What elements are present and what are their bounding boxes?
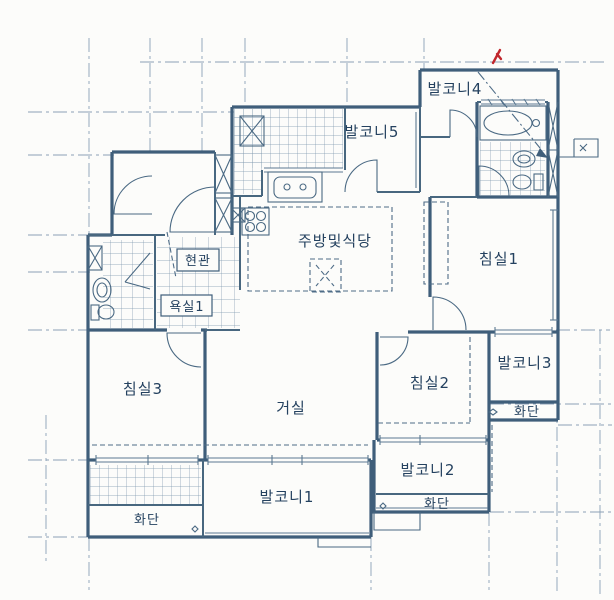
room-label-bath1: 욕실1 — [169, 300, 204, 315]
room-label-bedroom1: 침실1 — [479, 250, 519, 268]
room-label-living: 거실 — [276, 399, 306, 417]
room-label-balcony1: 발코니1 — [260, 488, 315, 506]
bathtub-symbol — [480, 106, 546, 140]
red-pen-mark — [493, 50, 501, 63]
room-label-entrance: 현관 — [185, 254, 211, 269]
room-label-bedroom2: 침실2 — [410, 374, 450, 392]
kitchen-sink-symbol — [268, 172, 322, 202]
label-flowerbed-left: 화단 — [134, 513, 160, 528]
floor-plan-image: 발코니4 발코니5 주방및식당 침실1 현관 욕실1 침실3 거실 침실2 발코… — [0, 0, 614, 600]
room-label-kitchen: 주방및식당 — [298, 232, 372, 250]
room-label-bedroom3: 침실3 — [123, 380, 163, 398]
room-label-balcony3: 발코니3 — [498, 354, 553, 372]
room-label-balcony5: 발코니5 — [345, 123, 400, 141]
label-flowerbed-right: 화단 — [514, 405, 540, 420]
gas-range-symbol — [242, 208, 269, 235]
room-label-balcony4: 발코니4 — [428, 80, 483, 98]
floor-plan-canvas: 발코니4 발코니5 주방및식당 침실1 현관 욕실1 침실3 거실 침실2 발코… — [0, 0, 614, 600]
room-label-balcony2: 발코니2 — [401, 461, 456, 479]
label-flowerbed-mid: 화단 — [424, 497, 450, 512]
right-edge-tag — [558, 139, 598, 157]
